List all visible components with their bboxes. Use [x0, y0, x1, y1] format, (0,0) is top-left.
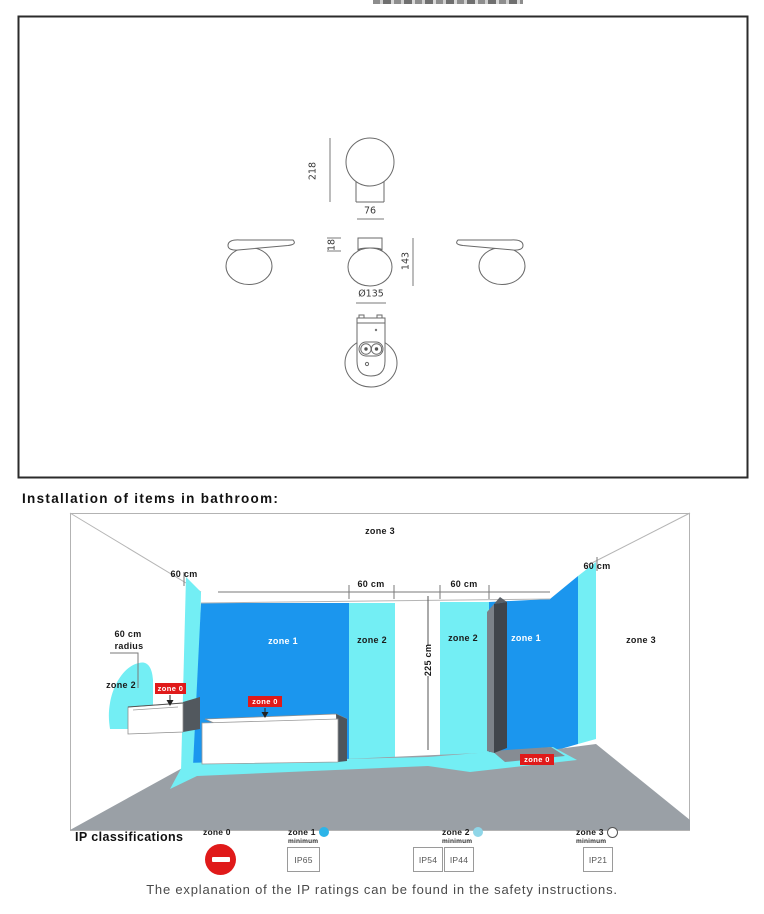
sink: [128, 697, 200, 734]
label-radius-line2: radius: [115, 641, 144, 651]
lamp-side-view-left: [226, 240, 294, 285]
dim-canopy-height: 18: [327, 239, 338, 251]
technical-drawing: [226, 138, 525, 387]
zone2-floor-band-left: [170, 757, 428, 789]
ip-rating-ip54: IP54: [413, 847, 443, 872]
dim-fixture-height: 143: [401, 252, 412, 270]
lamp-front-view: [330, 138, 394, 219]
zone3-dot-icon: [607, 827, 618, 838]
zone1-shower-side-wall: [550, 576, 578, 752]
label-60cm-mid-right: 60 cm: [450, 579, 477, 589]
legend-zone3-label: zone 3: [576, 827, 604, 837]
badge-zone0-tub: zone 0: [248, 696, 282, 707]
section-heading: Installation of items in bathroom:: [22, 491, 279, 506]
badge-zone0-sink: zone 0: [155, 683, 186, 694]
zone2-floor-band-right: [428, 747, 577, 772]
no-entry-icon: [205, 844, 236, 875]
legend-zone1-label: zone 1: [288, 827, 316, 837]
zone2-left-wall-strip: [181, 577, 201, 772]
label-zone2-sink: zone 2: [106, 680, 136, 690]
zone2-panel-right: [440, 602, 489, 762]
dim-base-width: 76: [364, 206, 376, 217]
label-60cm-left: 60 cm: [170, 569, 197, 579]
legend-zone1-minimum: minimum: [288, 838, 318, 845]
legend-zone0-label: zone 0: [203, 827, 231, 837]
label-zone2-mid-right: zone 2: [448, 633, 478, 643]
figure-box-border: [19, 17, 748, 478]
page: { "figure": { "dimensions": { "total_hei…: [0, 0, 764, 914]
label-zone3-wall: zone 3: [626, 635, 656, 645]
cropped-text-fragment: [373, 0, 523, 4]
badge-zone0-shower: zone 0: [520, 754, 554, 765]
label-60cm-mid-left: 60 cm: [357, 579, 384, 589]
shower-partition: [487, 597, 507, 753]
label-zone1-tub: zone 1: [268, 636, 298, 646]
label-zone2-mid-left: zone 2: [357, 635, 387, 645]
legend-zone3-minimum: minimum: [576, 838, 606, 845]
ip-rating-ip21: IP21: [583, 847, 613, 872]
zone1-shower-wall: [489, 599, 550, 759]
legend-zone2-label: zone 2: [442, 827, 470, 837]
bathtub: [202, 714, 347, 764]
zone2-panel-left: [349, 603, 395, 766]
zone1-tub-wall: [193, 603, 349, 766]
zone2-radius-arch: [109, 663, 153, 729]
label-225cm: 225 cm: [423, 644, 433, 676]
lamp-plan-view: [345, 315, 397, 387]
ip-rating-ip65: IP65: [287, 847, 320, 872]
floor: [70, 744, 690, 830]
zone2-dot-icon: [473, 827, 483, 837]
no-entry-bar: [212, 857, 230, 862]
dim-diameter: Ø135: [358, 289, 384, 300]
label-zone1-shower: zone 1: [511, 633, 541, 643]
vector-art-layer: [0, 0, 764, 914]
ip-rating-ip44: IP44: [444, 847, 474, 872]
footer-note: The explanation of the IP ratings can be…: [0, 882, 764, 897]
zone2-right-wall-strip: [578, 562, 596, 744]
label-60cm-right: 60 cm: [583, 561, 610, 571]
legend-title: IP classifications: [75, 830, 183, 844]
dim-total-height: 218: [308, 162, 319, 180]
zone1-dot-icon: [319, 827, 329, 837]
lamp-side-view-right: [457, 240, 525, 285]
label-radius-line1: 60 cm: [114, 629, 141, 639]
label-zone3-ceiling: zone 3: [365, 526, 395, 536]
legend-zone2-minimum: minimum: [442, 838, 472, 845]
